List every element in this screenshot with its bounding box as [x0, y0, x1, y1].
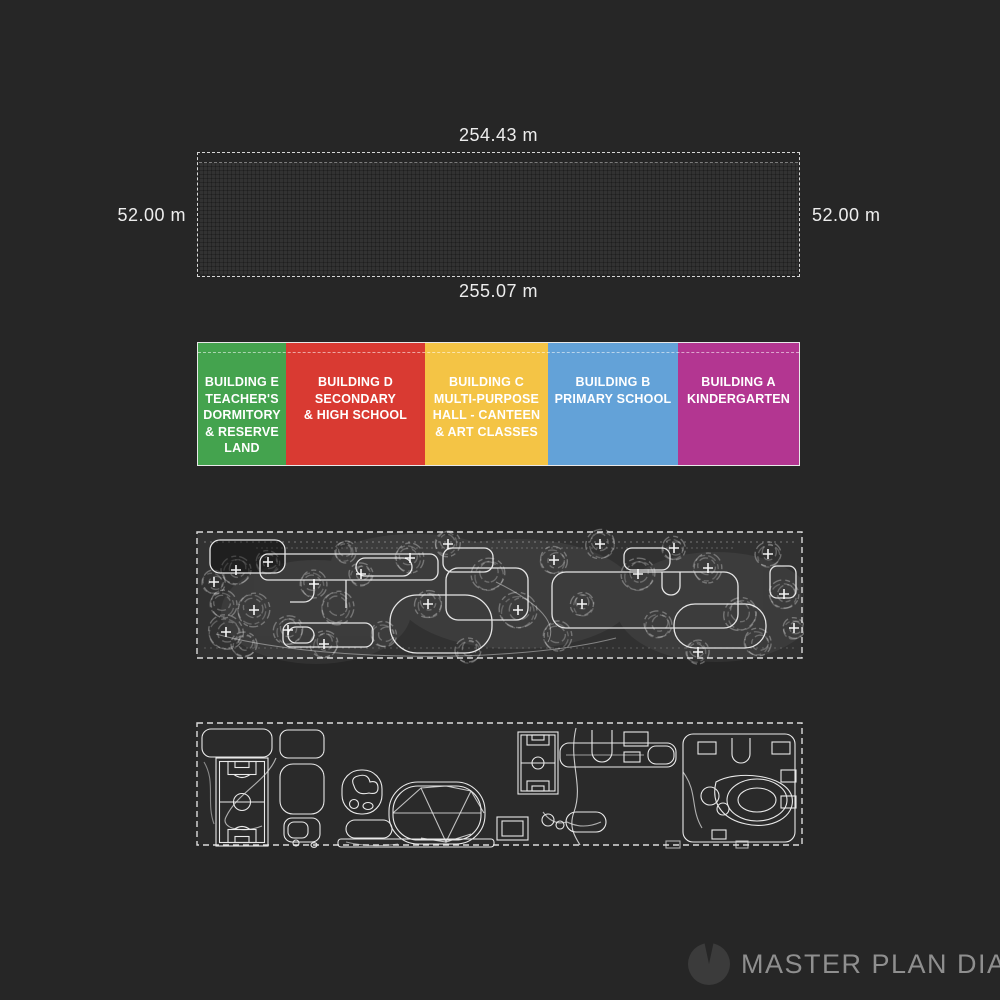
- legend-segment-label-line: BUILDING E: [205, 374, 279, 391]
- legend-segment-label-line: TEACHER'S: [205, 391, 279, 408]
- legend-segment-building-a: BUILDING AKINDERGARTEN: [678, 343, 799, 465]
- dimension-label-right: 52.00 m: [812, 205, 940, 226]
- legend-segment-building-b: BUILDING BPRIMARY SCHOOL: [548, 343, 678, 465]
- legend-segment-label-line: SECONDARY: [315, 391, 396, 408]
- legend-segment-label-line: HALL - CANTEEN: [433, 407, 540, 424]
- legend-segment-building-c: BUILDING CMULTI-PURPOSEHALL - CANTEEN& A…: [425, 343, 548, 465]
- clock-logo-icon: [687, 942, 731, 986]
- legend-segment-label-line: & HIGH SCHOOL: [304, 407, 407, 424]
- legend-segment-label-line: KINDERGARTEN: [687, 391, 790, 408]
- dimension-label-top: 254.43 m: [197, 125, 800, 146]
- site-area-fill: [199, 162, 798, 275]
- legend-segment-label-line: BUILDING D: [318, 374, 393, 391]
- dimension-label-left: 52.00 m: [58, 205, 186, 226]
- floor-plan-drawing: [196, 712, 804, 857]
- legend-segment-label-line: DORMITORY: [203, 407, 281, 424]
- legend-segment-label-line: MULTI-PURPOSE: [434, 391, 539, 408]
- legend-segment-label-line: LAND: [224, 440, 260, 457]
- legend-segment-label-line: BUILDING C: [449, 374, 524, 391]
- legend-segment-label-line: BUILDING B: [576, 374, 651, 391]
- legend-segment-building-d: BUILDING DSECONDARY& HIGH SCHOOL: [286, 343, 425, 465]
- master-plan-diagram-page: 254.43 m 52.00 m 52.00 m 255.07 m BUILDI…: [0, 0, 1000, 1000]
- legend-segment-label-line: BUILDING A: [701, 374, 775, 391]
- legend-segment-label-line: & RESERVE: [205, 424, 279, 441]
- landscape-plan-drawing: [196, 512, 804, 672]
- building-legend-bar: BUILDING ETEACHER'SDORMITORY& RESERVELAN…: [197, 342, 800, 466]
- legend-segment-label-line: & ART CLASSES: [435, 424, 538, 441]
- dimension-label-bottom: 255.07 m: [197, 281, 800, 302]
- legend-segment-label-line: PRIMARY SCHOOL: [555, 391, 672, 408]
- diagram-title: MASTER PLAN DIAGRAM: [741, 949, 1000, 980]
- site-boundary-rectangle: [197, 152, 800, 277]
- legend-segment-building-e: BUILDING ETEACHER'SDORMITORY& RESERVELAN…: [198, 343, 286, 465]
